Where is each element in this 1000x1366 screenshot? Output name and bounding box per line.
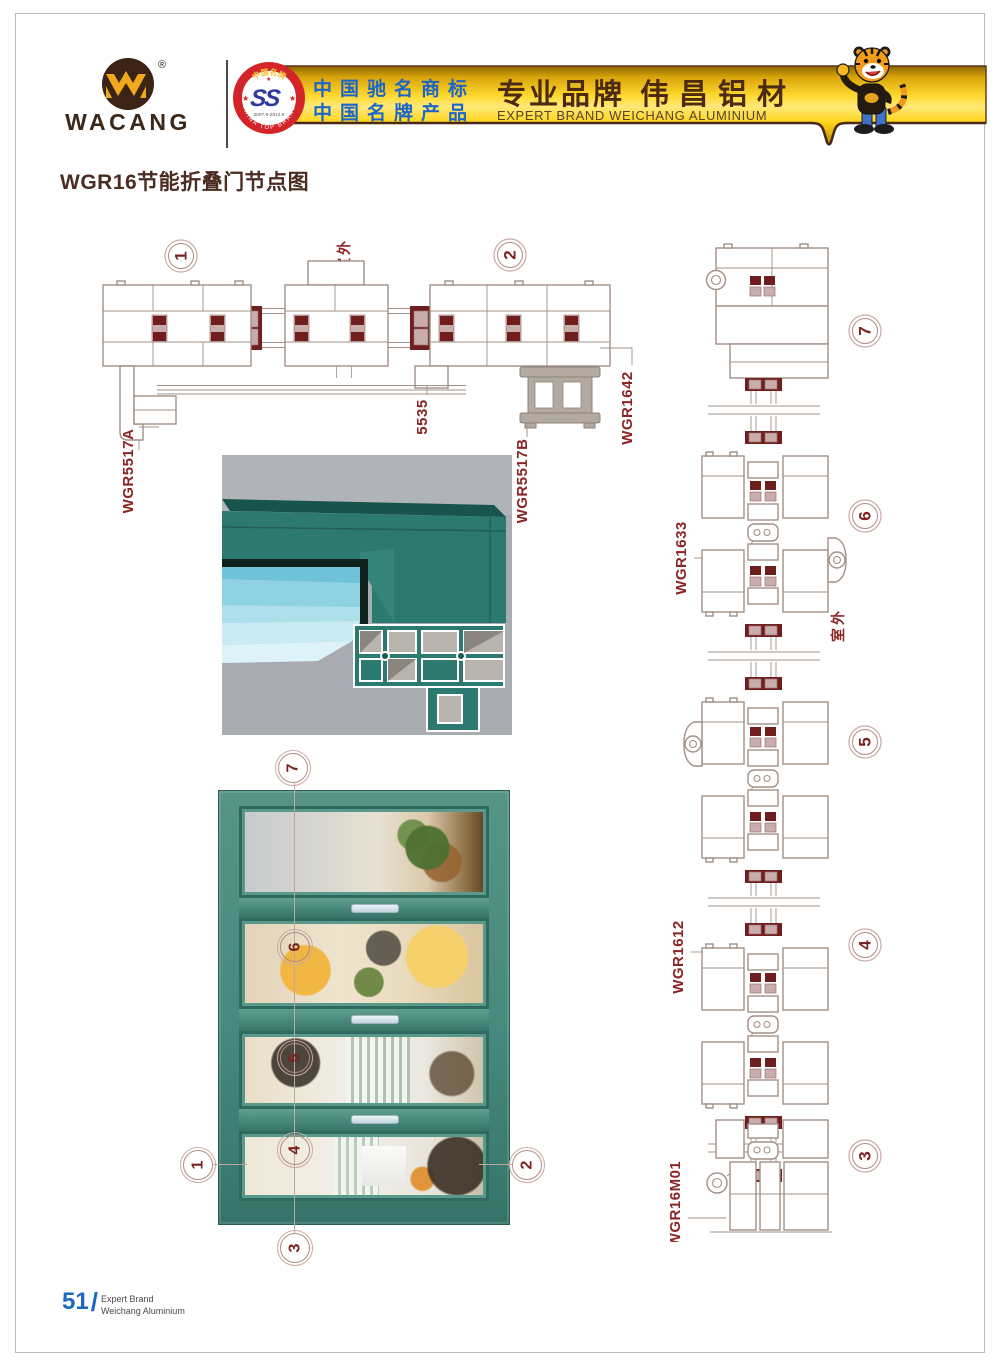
door-rail-3: [239, 1109, 489, 1131]
hinge-left: [684, 722, 702, 766]
door-handle-3: [351, 1115, 399, 1124]
jamb-top-profile: [707, 244, 829, 378]
tiger-mascot-icon: [832, 40, 910, 136]
photo-callout-5: 5: [280, 1043, 310, 1073]
catalog-page: 中国驰名商标 中国名牌产品 专业品牌 伟昌铝材 EXPERT BRAND WEI…: [0, 0, 1000, 1366]
badge-star-top: ★: [266, 76, 271, 83]
door-pane-3: [239, 1031, 489, 1109]
svg-text:3: 3: [856, 1151, 875, 1160]
floor-track-profile: [520, 367, 600, 428]
photo-callout-1: 1: [183, 1150, 213, 1180]
svg-text:5: 5: [856, 737, 875, 746]
photo-callout-6: 6: [280, 932, 310, 962]
photo-callout-7: 7: [278, 753, 308, 783]
footer-line1: Expert Brand: [101, 1293, 185, 1305]
part-label-wgr1642: WGR1642: [619, 371, 636, 445]
callout-leader-1: [213, 1164, 247, 1165]
photo-callout-2: 2: [512, 1150, 542, 1180]
callout-5: 5: [849, 726, 881, 758]
callout-2: 2: [494, 239, 526, 271]
photo-callout-4: 4: [280, 1135, 310, 1165]
door-pane-2: [239, 918, 489, 1009]
bottom-roller-profile: [707, 1120, 832, 1232]
folding-door-photo: [218, 790, 510, 1225]
header-divider: [226, 60, 228, 148]
callout-3: 3: [849, 1140, 881, 1172]
china-top-brand-badge: 中国名牌 CHINA TOP BRAND ★ ★ ★ SS 2007.9-201…: [231, 56, 307, 140]
glazing-pocket-right: [410, 306, 432, 350]
page-title: WGR16节能折叠门节点图: [60, 166, 309, 196]
callout-1: 1: [165, 240, 197, 272]
callout-7: 7: [849, 315, 881, 347]
door-pane-4: [239, 1131, 489, 1201]
banner-slogan-cn: 专业品牌: [497, 77, 625, 111]
part-label-wgr16m01: WGR16M01: [667, 1161, 684, 1242]
profile-left-assembly: [103, 281, 251, 450]
door-rail-1: [239, 898, 489, 918]
door-pane-1: [239, 806, 489, 898]
right-section-drawing: 室外 WGR1633 WGR1612 WGR16M01 7 6 5 4 3: [650, 242, 910, 1242]
banner-slogan-en: EXPERT BRAND WEICHANG ALUMINIUM: [497, 108, 767, 123]
door-rail-2: [239, 1009, 489, 1031]
callout-6: 6: [849, 500, 881, 532]
callout-4: 4: [849, 929, 881, 961]
hinge-right: [828, 538, 846, 582]
profile-middle-stile: [285, 261, 388, 366]
page-number: 51: [62, 1290, 89, 1314]
part-label-5535: 5535: [414, 399, 431, 434]
wacang-logo: ® WACANG: [60, 56, 196, 136]
badge-star-right: ★: [289, 94, 296, 103]
callout-leader-2: [479, 1164, 512, 1165]
footer-line2: Weichang Aluminium: [101, 1305, 185, 1317]
badge-star-left: ★: [242, 94, 249, 103]
banner-trademark-line1: 中国驰名商标: [313, 77, 475, 100]
svg-text:4: 4: [856, 940, 875, 950]
registered-mark: ®: [158, 59, 166, 71]
part-label-wgr1633: WGR1633: [673, 521, 690, 595]
footer-slash: /: [91, 1290, 98, 1314]
svg-text:6: 6: [856, 511, 875, 520]
logo-wordmark: WACANG: [65, 109, 191, 135]
svg-text:2: 2: [501, 250, 520, 259]
door-handle-1: [351, 904, 399, 913]
part-label-wgr5517a: WGR5517A: [120, 429, 137, 514]
part-label-wgr1612: WGR1612: [670, 920, 687, 994]
photo-callout-3: 3: [280, 1233, 310, 1263]
page-footer: 51 / Expert Brand Weichang Aluminium: [62, 1290, 185, 1317]
corner-3d-render: [222, 455, 512, 735]
banner-trademark-line2: 中国名牌产品: [313, 101, 475, 124]
svg-text:1: 1: [172, 251, 191, 260]
part-label-wgr5517b: WGR5517B: [514, 439, 531, 524]
door-handle-2: [351, 1015, 399, 1024]
badge-years: 2007.9-2012.9: [254, 112, 285, 118]
badge-emblem: SS: [249, 85, 282, 112]
banner-brand-cn: 伟昌铝材: [640, 78, 796, 111]
outdoor-label-right: 室外: [830, 608, 846, 642]
svg-text:7: 7: [856, 326, 875, 335]
